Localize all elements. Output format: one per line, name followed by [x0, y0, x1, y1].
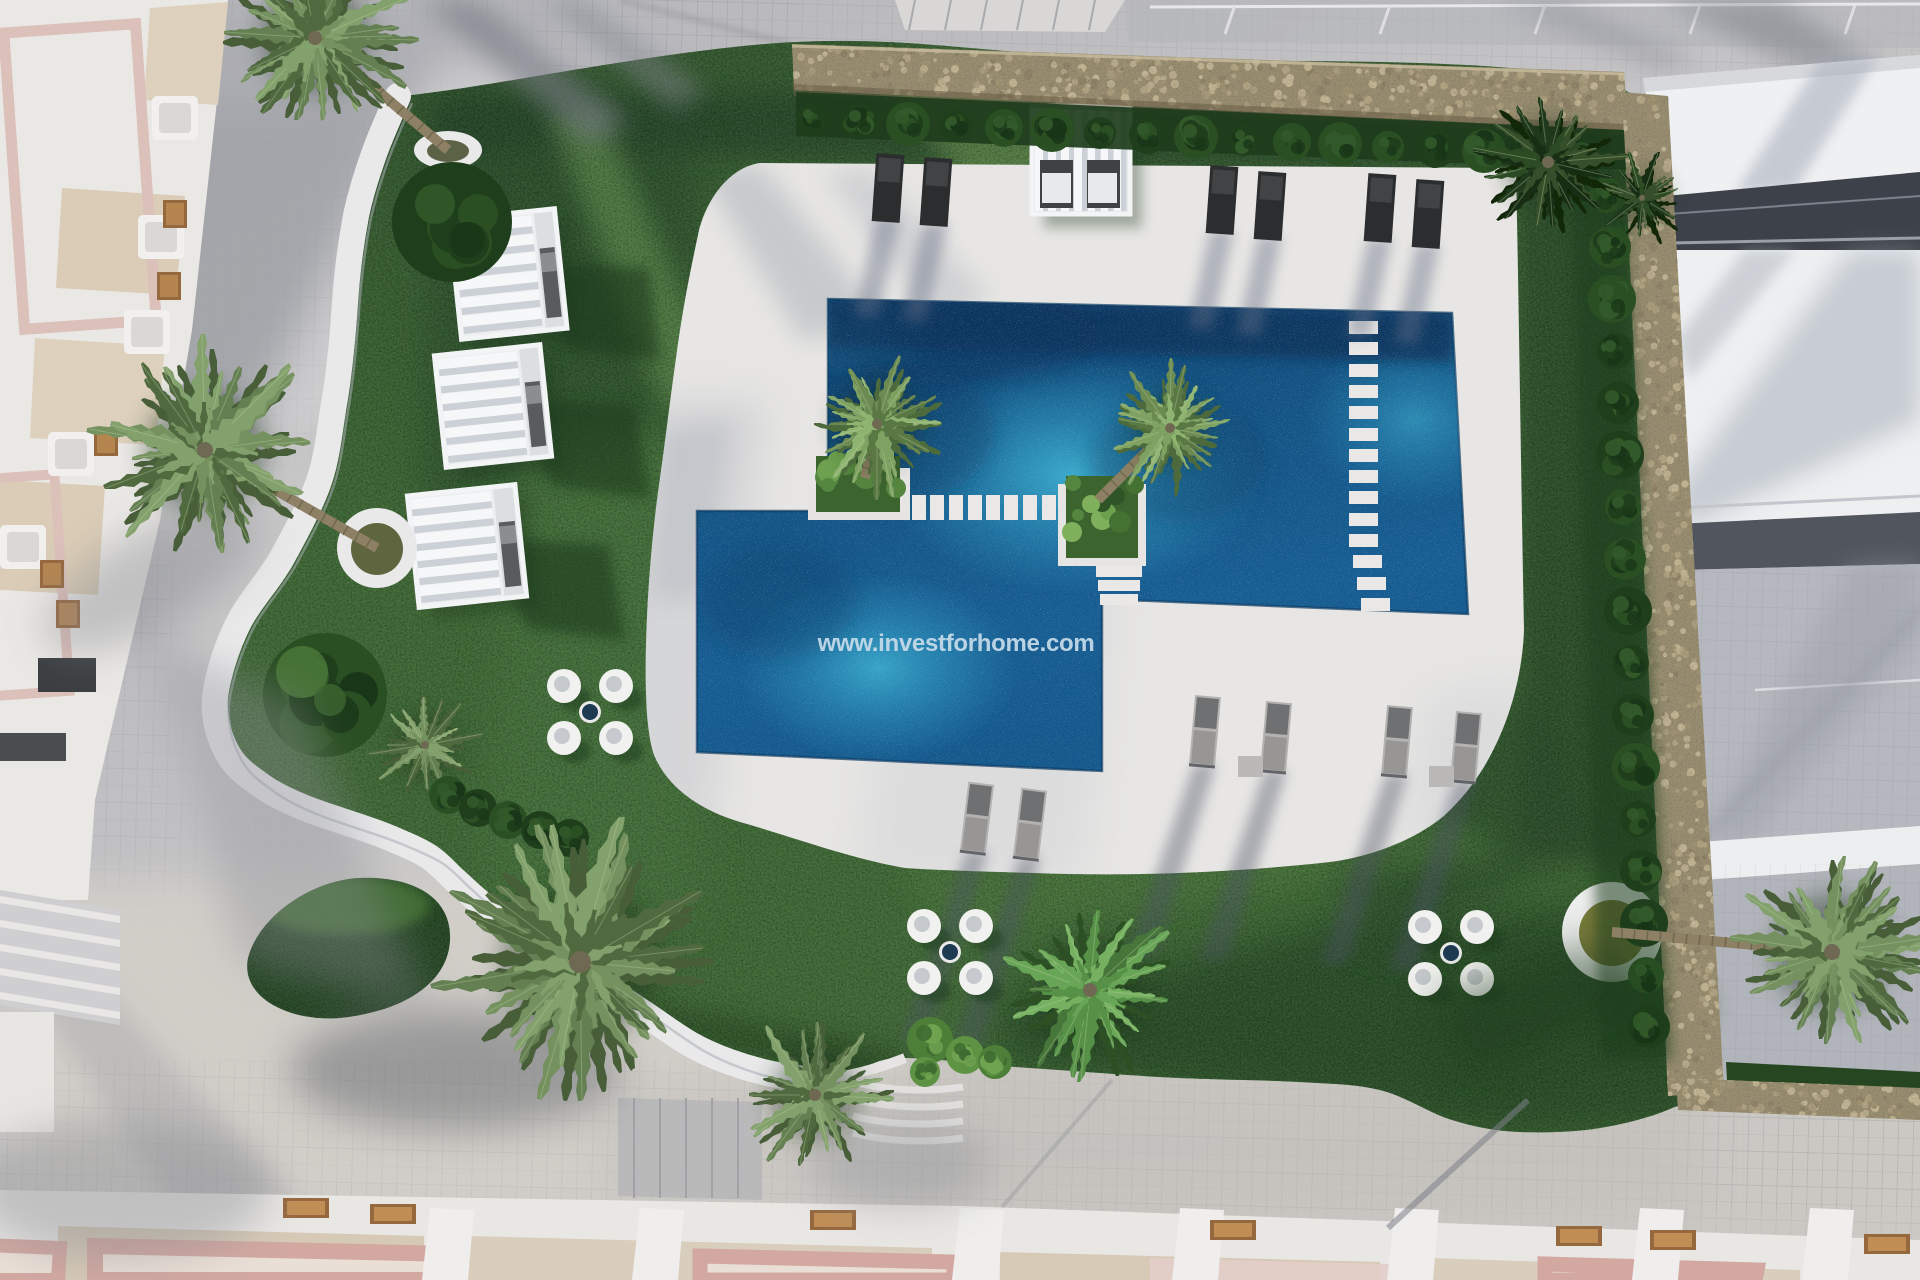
svg-text:www.investforhome.com: www.investforhome.com	[817, 630, 1095, 657]
